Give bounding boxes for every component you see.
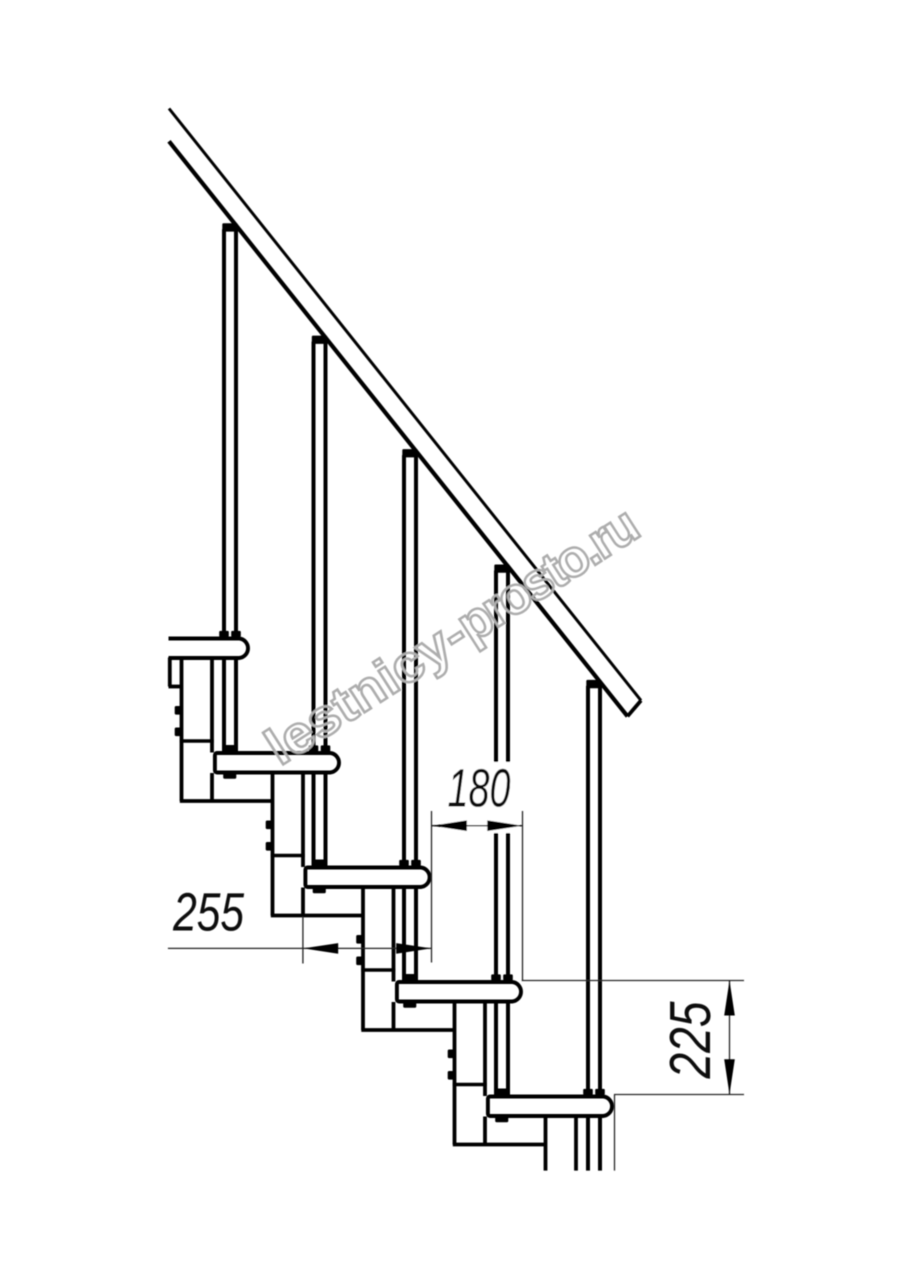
svg-text:180: 180: [448, 759, 511, 819]
svg-text:225: 225: [658, 1001, 723, 1079]
svg-text:255: 255: [172, 883, 245, 943]
svg-text:lestnicy-: lestnicy-: [255, 605, 477, 776]
svg-text:prosto.ru: prosto.ru: [446, 496, 649, 655]
